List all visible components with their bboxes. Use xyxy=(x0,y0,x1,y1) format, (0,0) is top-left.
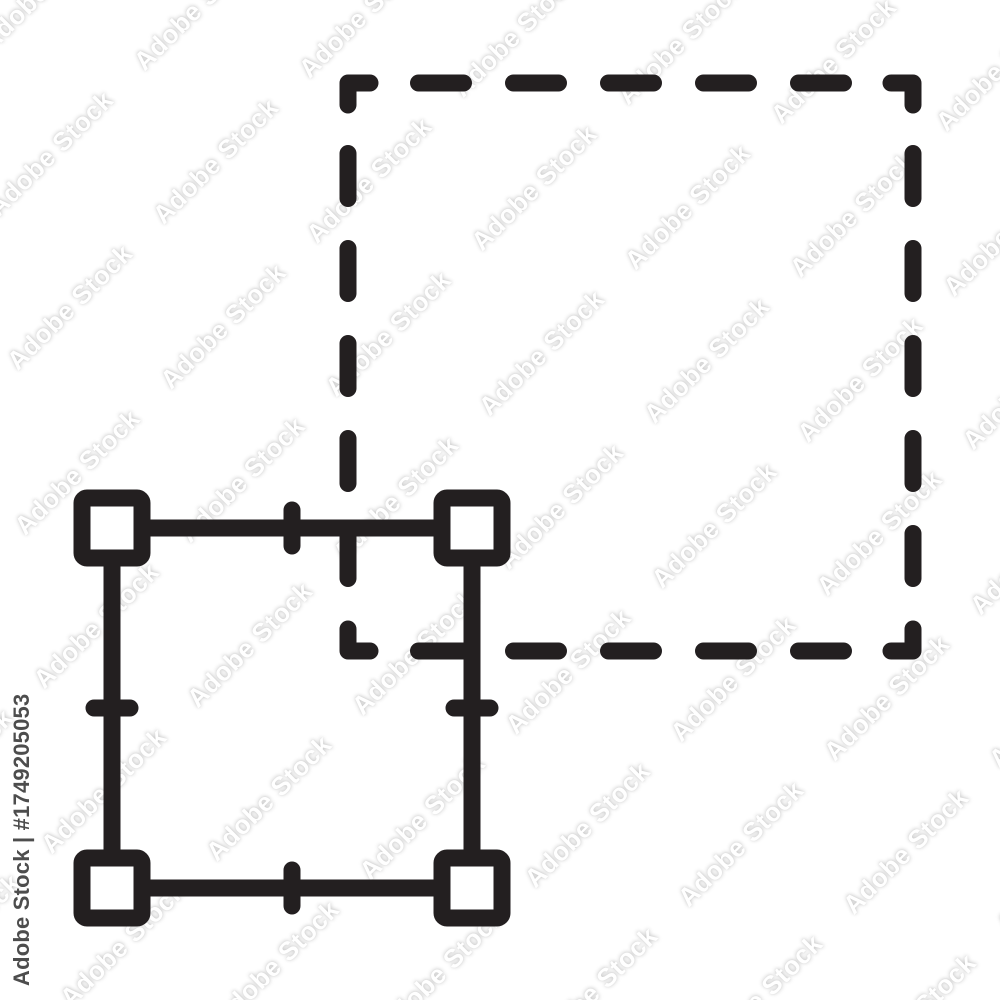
stock-image-canvas: Adobe StockAdobe StockAdobe StockAdobe S… xyxy=(0,0,1000,1000)
dashed-square xyxy=(348,83,913,651)
dashed-square-corner-bottom-left xyxy=(348,629,370,651)
object-group-selection-icon xyxy=(0,0,1000,1000)
corner-handle-top-right xyxy=(442,498,502,558)
stock-attribution-text: Adobe Stock | #1749205053 xyxy=(9,694,35,986)
dashed-square-corner-top-right xyxy=(891,83,913,105)
corner-handle-top-left xyxy=(82,498,142,558)
selection-square xyxy=(82,498,502,918)
corner-handle-bottom-right xyxy=(442,858,502,918)
dashed-square-corner-bottom-right xyxy=(891,629,913,651)
dashed-square-corner-top-left xyxy=(348,83,370,105)
corner-handle-bottom-left xyxy=(82,858,142,918)
